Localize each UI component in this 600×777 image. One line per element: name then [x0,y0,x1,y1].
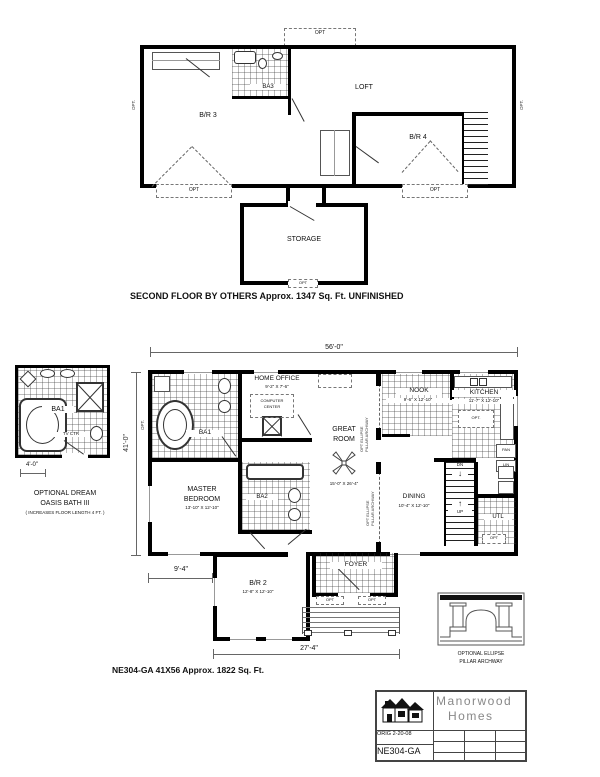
dim-27-label: 27'-4" [268,645,350,652]
dim-41-label: 41'-0" [123,434,131,452]
porch-post [304,630,312,636]
wall-segment [382,434,410,437]
foyer-label: FOYER [330,562,382,569]
up-arrow-icon: ↑ [452,500,468,508]
wall-segment [152,458,242,462]
window-line [168,554,200,555]
porch-post [344,630,352,636]
dim-tick [131,555,141,556]
dim-tick [131,372,141,373]
br2-label: B/R 2 [228,580,288,587]
dim-56-label: 56'-0" [293,344,375,351]
master-label2: BEDROOM [166,496,238,503]
opt-window-label: OPT [156,188,232,193]
ba2-tub [246,464,304,480]
ceiling-fan-icon [331,450,357,476]
wall-segment [352,112,462,116]
nook-label: NOOK [396,388,442,395]
ba2-toilet [288,488,301,503]
wall-segment [352,112,356,188]
kitchen-sink [470,378,478,386]
home-office-size: 9'-2" X 7'-6" [242,385,312,390]
opt-fireplace-box [318,374,352,388]
kitchen-sink [479,378,487,386]
title-block-divider [433,752,527,753]
brand-line2: Homes [448,710,524,723]
orig-date: ORIG 2-20-08 [377,732,431,738]
archway-pillar [376,462,381,474]
nook-floor [382,374,452,436]
title-block-divider [495,730,496,762]
title-block-divider [375,744,433,745]
ba1-label: BA1 [186,430,224,437]
opt-window-label: OPT [288,281,318,285]
master-size: 13'-10" X 12'-10" [166,506,238,511]
window-line [396,372,422,373]
dim-tick [212,573,213,583]
wall-segment [312,553,316,597]
opt-side-label: OPT. [519,100,524,110]
inset-dim-line [20,473,46,474]
archway-detail-drawing [437,592,525,646]
title-block-divider [433,730,434,762]
opt-side-label: OPT. [131,100,136,110]
ba1-sink [218,400,231,413]
inset-caption3: ( INCREASES FLOOR LENGTH 4 FT. ) [2,511,128,516]
wall-segment [242,438,312,442]
opt-window-label: OPT [402,188,468,193]
window-line [266,639,292,640]
archway-detail-caption1: OPTIONAL ELLIPSE [432,652,530,657]
archway-note: OPT ELLIPSE PILLAR ARCHWAY [360,392,370,452]
ba2-label: BA2 [246,494,278,500]
pantry-label: PAN [496,448,516,452]
second-floor-stairs [462,112,488,188]
archway-note-line2: PILLAR ARCHWAY [371,466,376,526]
window-line [230,639,256,640]
inset-caption1: OPTIONAL DREAM [2,490,128,497]
title-block-divider [433,741,527,742]
wall-segment [394,553,398,597]
window-line [214,578,215,606]
dim-tick [517,347,518,357]
opt-box-label: OPT [482,536,506,540]
computer-center-label1: COMPUTER [250,399,294,403]
opt-rail-label: OPT [358,598,386,602]
door-gap [288,201,316,207]
br3-closet [152,52,220,70]
inset-toilet [90,426,103,441]
ba3-tub [234,51,256,64]
inset-ba1-label: BA1 [42,406,74,413]
ba1-tub-inner [163,409,187,441]
window-line [517,396,518,426]
archway-pillar [376,374,381,386]
dim-line-9 [148,578,213,579]
porch-post [388,630,396,636]
storage-label: STORAGE [272,236,336,243]
dormer-opt-label: OPT [284,31,356,36]
opt-side-label: OPT. [140,420,145,430]
washer-box [498,466,514,479]
dining-label: DINING [384,494,444,501]
inset-tv-label: TV CTR [52,432,90,437]
first-floor-caption: NE304-GA 41X56 Approx. 1822 Sq. Ft. [112,666,412,675]
archway-note-line2: PILLAR ARCHWAY [365,392,370,452]
archway-detail-caption2: PILLAR ARCHWAY [432,660,530,665]
archway-note: OPT ELLIPSE PILLAR ARCHWAY [366,466,376,526]
inset-dim-label: 4'-0" [14,462,50,468]
wall-segment [288,49,291,115]
window-line [460,372,488,373]
down-arrow-icon: ↓ [452,470,468,478]
stairs-up-label: UP [448,510,472,515]
br2-outline [213,553,310,641]
dim-tick [399,649,400,659]
window-line [149,486,150,522]
linen-closet [154,376,170,392]
br4-label: B/R 4 [390,134,446,141]
ba1-toilet [218,378,231,394]
ba2-sink [288,508,301,521]
computer-center-label2: CENTER [250,405,294,409]
dim-tick [150,347,151,357]
stairs-dn-label: DN [448,463,472,468]
dim-line-27 [213,654,400,655]
wall-segment [478,494,518,498]
ba3-toilet [258,58,267,69]
inset-sink [60,369,75,378]
inset-sink [40,369,55,378]
model-number: NE304-GA [377,747,433,756]
kitchen-label: KITCHEN [452,390,516,397]
dim-tick [148,573,149,583]
ba3-label: BA3 [250,84,286,90]
inset-caption2: OASIS BATH III [2,500,128,507]
dim-tick [45,469,46,477]
second-floor-caption: SECOND FLOOR BY OTHERS Approx. 1347 Sq. … [130,292,510,301]
window-line [184,372,212,373]
door-gap [62,453,88,459]
window-line [254,372,278,373]
brand-line1: Manorwood [436,695,524,708]
dining-size: 10'-4" X 12'-10" [380,504,448,509]
dim-tick [20,469,21,477]
dim-tick [213,649,214,659]
door-gap [288,551,306,559]
opt-island-label: OPT. [458,416,494,420]
dim-line-41 [136,372,137,556]
home-office-label: HOME OFFICE [242,376,312,383]
archway-pillar [376,428,381,440]
ba3-sink [272,52,283,60]
wall-segment [232,96,291,99]
houses-logo-icon [380,695,428,727]
loft-label: LOFT [336,84,392,91]
br3-label: B/R 3 [176,112,240,119]
nook-size: 9'-6" X 12'-10" [386,398,450,403]
br2-size: 12'-8" X 12'-10" [222,590,294,595]
title-block-divider [464,730,465,762]
dryer-box [498,481,514,494]
utility-label: UTL [484,514,512,520]
dim-line-56 [150,352,518,353]
floorplan-sheet: OPT BA3 B/R 3 LOFT B/R 4 OPT OPT OPT. OP… [0,0,600,777]
opt-rail-label: OPT [316,598,344,602]
closet-shelf-line [334,130,335,176]
hall-closet [320,130,350,176]
closet-shelf-line [152,60,220,61]
title-block-divider [433,690,434,730]
master-label1: MASTER [166,486,238,493]
dim-9-label: 9'-4" [152,566,210,573]
kitchen-size: 11'-7" X 12'-10" [452,399,516,404]
